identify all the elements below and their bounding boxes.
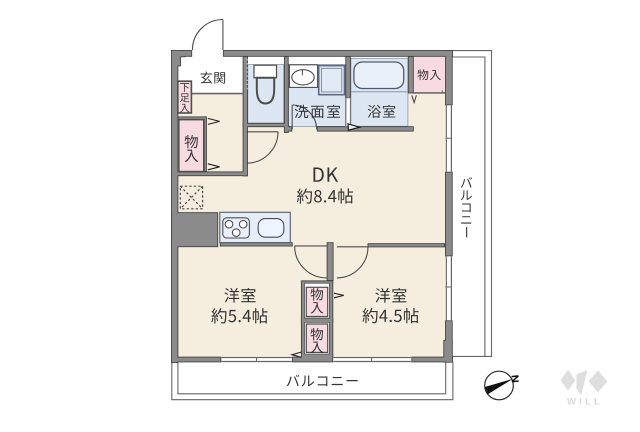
svg-text:WILL: WILL bbox=[567, 397, 603, 408]
